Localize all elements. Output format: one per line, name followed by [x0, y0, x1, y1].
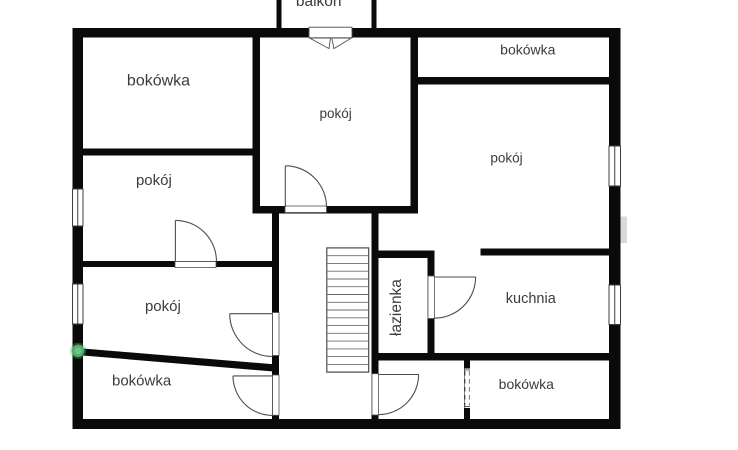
svg-text:pokój: pokój	[136, 172, 172, 189]
svg-text:bokówka: bokówka	[500, 42, 555, 58]
svg-text:pokój: pokój	[490, 150, 522, 165]
svg-text:balkon: balkon	[296, 0, 342, 10]
svg-text:bokówka: bokówka	[127, 72, 190, 89]
svg-text:bokówka: bokówka	[112, 373, 172, 390]
svg-text:pokój: pokój	[145, 298, 181, 315]
svg-text:łazienka: łazienka	[388, 279, 405, 336]
svg-text:kuchnia: kuchnia	[506, 291, 557, 307]
svg-text:pokój: pokój	[319, 106, 351, 121]
svg-text:bokówka: bokówka	[499, 376, 554, 392]
